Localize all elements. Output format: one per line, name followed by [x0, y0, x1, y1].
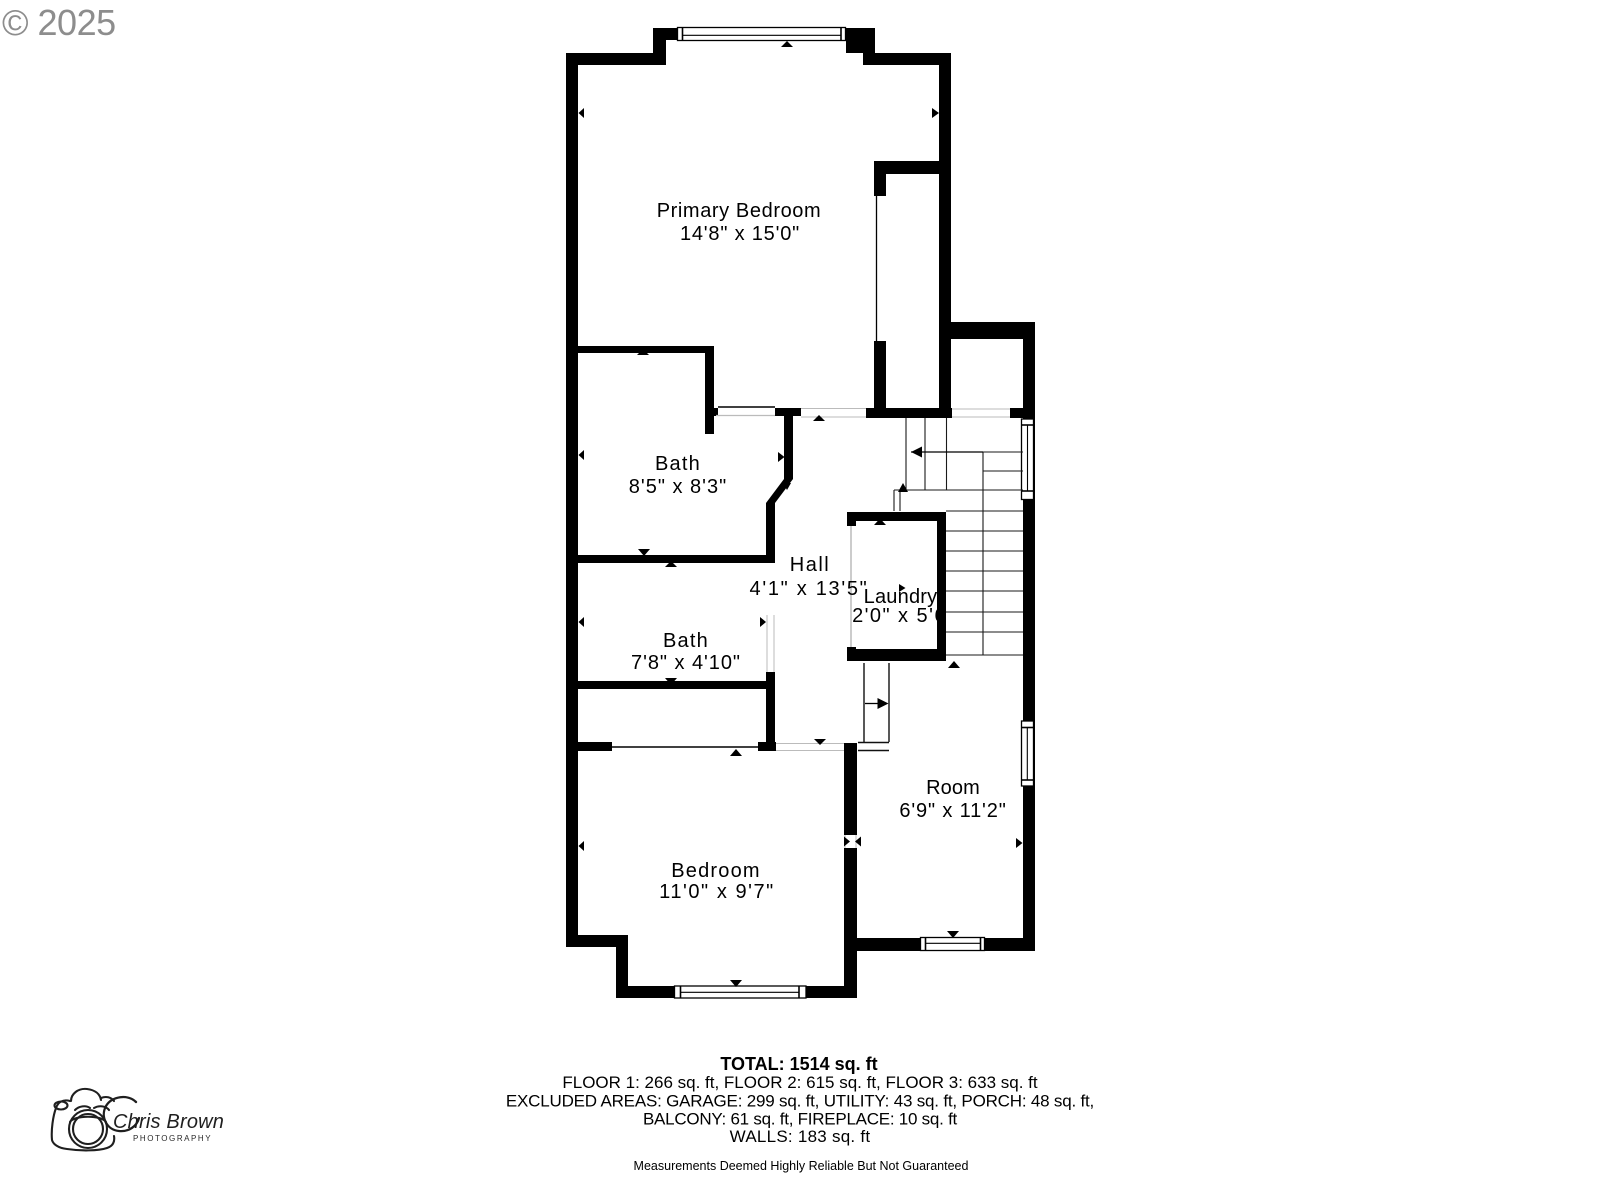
svg-text:6'9" x 11'2": 6'9" x 11'2": [899, 800, 1006, 822]
svg-text:FLOOR 1: 266 sq. ft, FLOOR 2:: FLOOR 1: 266 sq. ft, FLOOR 2: 615 sq. ft…: [562, 1073, 1038, 1092]
svg-text:Room: Room: [926, 777, 980, 799]
svg-text:EXCLUDED AREAS: GARAGE: 299 sq: EXCLUDED AREAS: GARAGE: 299 sq. ft, UTIL…: [506, 1092, 1094, 1111]
svg-text:Measurements Deemed Highly Rel: Measurements Deemed Highly Reliable But …: [634, 1159, 969, 1173]
svg-text:Chris Brown: Chris Brown: [113, 1111, 224, 1133]
svg-text:PHOTOGRAPHY: PHOTOGRAPHY: [133, 1134, 212, 1143]
svg-text:Primary Bedroom: Primary Bedroom: [657, 200, 822, 222]
svg-text:11'0" x 9'7": 11'0" x 9'7": [659, 881, 775, 903]
svg-text:2'0" x 5'6: 2'0" x 5'6: [852, 605, 947, 627]
svg-text:14'8" x 15'0": 14'8" x 15'0": [680, 223, 800, 245]
svg-text:TOTAL: 1514 sq. ft: TOTAL: 1514 sq. ft: [720, 1054, 877, 1074]
svg-text:4'1" x 13'5": 4'1" x 13'5": [750, 578, 869, 600]
svg-text:Bath: Bath: [663, 630, 709, 652]
svg-text:Bath: Bath: [655, 453, 701, 475]
svg-text:© 2025: © 2025: [2, 2, 116, 43]
svg-text:8'5" x 8'3": 8'5" x 8'3": [629, 476, 727, 498]
svg-text:WALLS: 183 sq. ft: WALLS: 183 sq. ft: [730, 1127, 871, 1146]
svg-text:Bedroom: Bedroom: [671, 860, 761, 882]
svg-text:Hall: Hall: [790, 554, 830, 576]
svg-text:7'8" x 4'10": 7'8" x 4'10": [631, 652, 741, 674]
svg-text:BALCONY: 61 sq. ft, FIREPLACE:: BALCONY: 61 sq. ft, FIREPLACE: 10 sq. ft: [643, 1110, 958, 1129]
